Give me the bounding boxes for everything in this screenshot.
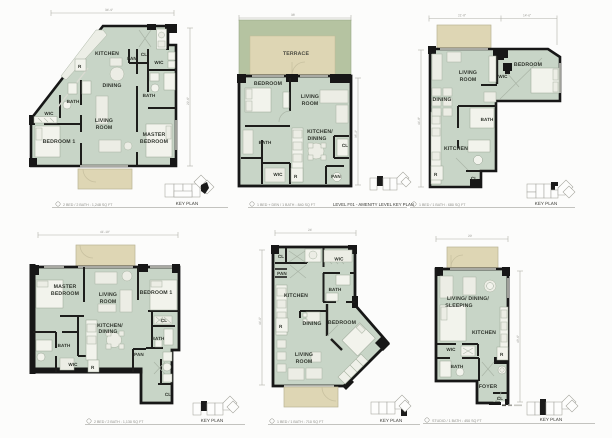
svg-text:LIVING: LIVING: [295, 352, 313, 358]
svg-text:KITCHEN: KITCHEN: [284, 293, 308, 299]
svg-text:KITCHEN/: KITCHEN/: [307, 129, 333, 135]
svg-text:BEDROOM: BEDROOM: [140, 139, 168, 145]
svg-text:BEDROOM 1: BEDROOM 1: [43, 139, 76, 145]
svg-text:PAN: PAN: [134, 352, 144, 357]
svg-text:R: R: [294, 174, 298, 179]
svg-text:2 BED / 2 BATH - 1,248 SQ FT: 2 BED / 2 BATH - 1,248 SQ FT: [63, 203, 113, 207]
svg-text:R: R: [91, 365, 95, 370]
svg-text:CL: CL: [165, 392, 171, 397]
svg-text:KEY PLAN: KEY PLAN: [176, 201, 198, 206]
svg-text:BATH: BATH: [451, 364, 464, 369]
svg-text:34'-9": 34'-9": [105, 8, 113, 12]
svg-text:DINING: DINING: [102, 83, 121, 89]
svg-text:35'-2": 35'-2": [354, 130, 358, 138]
svg-text:ROOM: ROOM: [302, 101, 319, 107]
svg-text:STUDIO / 1 BATH - 450 SQ FT: STUDIO / 1 BATH - 450 SQ FT: [432, 419, 482, 423]
svg-text:44'-8": 44'-8": [417, 117, 421, 125]
svg-text:14'-6": 14'-6": [523, 14, 531, 18]
svg-text:ROOM: ROOM: [460, 77, 477, 83]
svg-text:WIC: WIC: [44, 111, 54, 116]
svg-text:ROOM: ROOM: [100, 299, 117, 305]
svg-text:21'-8": 21'-8": [458, 14, 466, 18]
svg-text:KEY PLAN: KEY PLAN: [201, 418, 223, 423]
svg-text:BEDROOM: BEDROOM: [328, 320, 356, 326]
svg-text:BEDROOM: BEDROOM: [51, 291, 79, 297]
svg-text:KEY PLAN: KEY PLAN: [535, 201, 557, 206]
svg-text:PAN: PAN: [277, 271, 287, 276]
svg-text:LIVING: LIVING: [301, 94, 319, 100]
svg-text:CL: CL: [342, 143, 348, 148]
svg-text:LIVING: LIVING: [95, 118, 113, 124]
svg-text:CL: CL: [497, 396, 503, 401]
svg-text:KITCHEN: KITCHEN: [444, 146, 468, 152]
svg-text:1 BED + DEN / 1 BATH - 840 SQ: 1 BED + DEN / 1 BATH - 840 SQ FT: [257, 203, 316, 207]
svg-text:R: R: [500, 352, 504, 357]
svg-text:LIVING: LIVING: [99, 292, 117, 298]
svg-text:CL: CL: [161, 318, 167, 323]
svg-text:WIC: WIC: [446, 347, 456, 352]
svg-text:PAN: PAN: [127, 56, 137, 61]
svg-text:BEDROOM: BEDROOM: [254, 81, 282, 87]
svg-text:BATH: BATH: [152, 336, 165, 341]
svg-text:BATH: BATH: [481, 117, 494, 122]
svg-text:2 BED / 2 BATH - 1,130 SQ FT: 2 BED / 2 BATH - 1,130 SQ FT: [94, 420, 144, 424]
svg-text:BEDROOM: BEDROOM: [514, 62, 542, 68]
svg-text:LIVING/ DINING/: LIVING/ DINING/: [447, 296, 489, 302]
svg-text:BEDROOM 1: BEDROOM 1: [140, 290, 173, 296]
svg-text:WIC: WIC: [334, 257, 344, 262]
svg-text:WIC: WIC: [154, 60, 164, 65]
svg-text:38': 38': [291, 13, 296, 17]
svg-text:44'-0": 44'-0": [258, 317, 262, 325]
svg-text:KITCHEN: KITCHEN: [95, 51, 119, 57]
svg-text:DINING: DINING: [302, 321, 321, 327]
svg-text:FOYER: FOYER: [479, 384, 498, 390]
svg-text:LEVEL F01 - AMENITY LEVEL KEY: LEVEL F01 - AMENITY LEVEL KEY PLAN: [333, 202, 414, 207]
svg-text:BATH: BATH: [259, 140, 272, 145]
svg-text:WIC: WIC: [68, 362, 78, 367]
svg-text:DINING: DINING: [98, 329, 117, 335]
svg-text:ROOM: ROOM: [96, 125, 113, 131]
svg-text:R: R: [279, 324, 283, 329]
svg-text:KEY PLAN: KEY PLAN: [380, 418, 402, 423]
svg-text:1 BED / 1 BATH - 710 SQ FT: 1 BED / 1 BATH - 710 SQ FT: [277, 420, 324, 424]
svg-text:43'-6": 43'-6": [516, 335, 520, 343]
svg-text:KITCHEN: KITCHEN: [472, 330, 496, 336]
svg-text:PAN: PAN: [331, 174, 341, 179]
svg-text:SLEEPING: SLEEPING: [445, 303, 472, 309]
svg-text:MASTER: MASTER: [143, 132, 166, 138]
svg-text:WIC: WIC: [273, 172, 283, 177]
svg-text:BATH: BATH: [58, 343, 71, 348]
svg-text:DINING: DINING: [432, 97, 451, 103]
svg-text:BATH: BATH: [329, 287, 342, 292]
svg-text:TERRACE: TERRACE: [283, 51, 310, 57]
svg-text:BATH: BATH: [67, 99, 80, 104]
svg-text:ROOM: ROOM: [296, 359, 313, 365]
svg-text:20': 20': [468, 234, 473, 238]
svg-text:MASTER: MASTER: [54, 284, 77, 290]
svg-text:CL: CL: [141, 52, 147, 57]
svg-text:KEY PLAN: KEY PLAN: [540, 417, 562, 422]
svg-text:CL: CL: [471, 176, 477, 181]
svg-text:CL: CL: [278, 254, 284, 259]
svg-text:LIVING: LIVING: [459, 70, 477, 76]
svg-text:1 BED / 1 BATH - 680 SQ FT: 1 BED / 1 BATH - 680 SQ FT: [419, 203, 466, 207]
svg-text:BATH: BATH: [143, 93, 156, 98]
svg-text:DINING: DINING: [307, 136, 326, 142]
svg-text:29'-6": 29'-6": [186, 97, 190, 105]
svg-text:WIC: WIC: [498, 74, 508, 79]
svg-text:41'-10": 41'-10": [100, 230, 110, 234]
svg-text:24': 24': [308, 228, 313, 232]
svg-text:R: R: [78, 64, 82, 69]
svg-text:R: R: [434, 172, 438, 177]
